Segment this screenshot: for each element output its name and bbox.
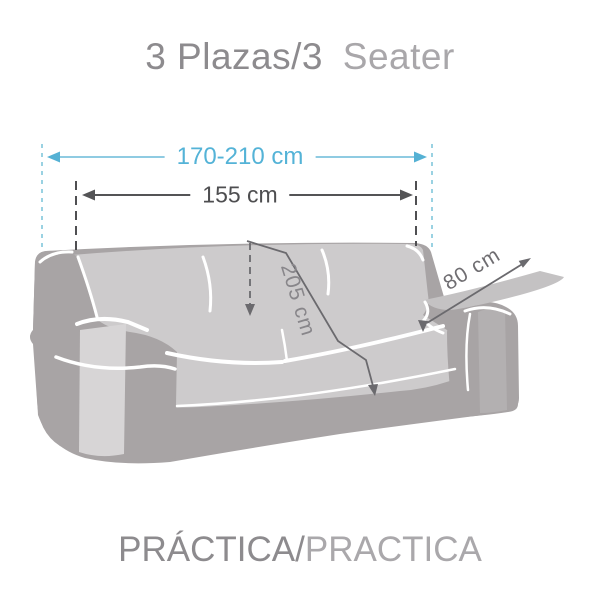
arrowhead-right-icon xyxy=(414,152,427,163)
arm-pocket-panel xyxy=(79,324,126,456)
right-arm-panel xyxy=(478,308,507,413)
arrowhead-left-icon xyxy=(47,152,60,163)
product-size-infographic: 3 Plazas/3 Seater 170-210 cm 155 cm 205 … xyxy=(0,0,600,600)
arrowhead-right-icon xyxy=(400,190,413,201)
overall-width-label: 170-210 cm xyxy=(165,143,316,171)
page-title: 3 Plazas/3 Seater xyxy=(0,36,600,78)
footer-spanish: PRÁCTICA/ xyxy=(118,530,305,569)
title-english: Seater xyxy=(343,36,455,77)
footer-english: PRACTICA xyxy=(305,530,482,569)
cover-width-label: 155 cm xyxy=(190,182,289,209)
arrowhead-left-icon xyxy=(82,190,95,201)
title-spanish: 3 Plazas/3 xyxy=(145,36,323,77)
footer-title: PRÁCTICA/PRACTICA xyxy=(0,530,600,570)
arrowhead-up-right-icon xyxy=(519,258,531,268)
